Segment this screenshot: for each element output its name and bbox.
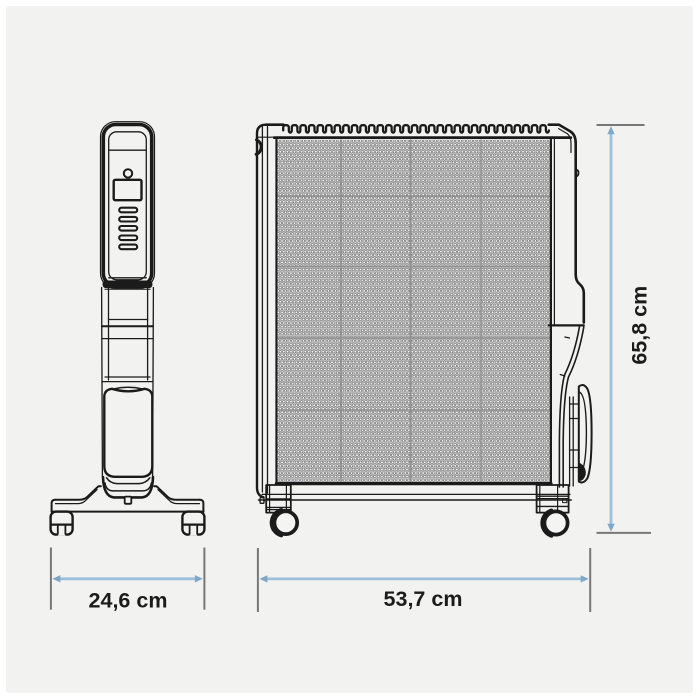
svg-text:24,6 cm: 24,6 cm [89, 589, 168, 613]
svg-text:65,8 cm: 65,8 cm [628, 286, 652, 365]
svg-text:53,7 cm: 53,7 cm [384, 587, 463, 611]
